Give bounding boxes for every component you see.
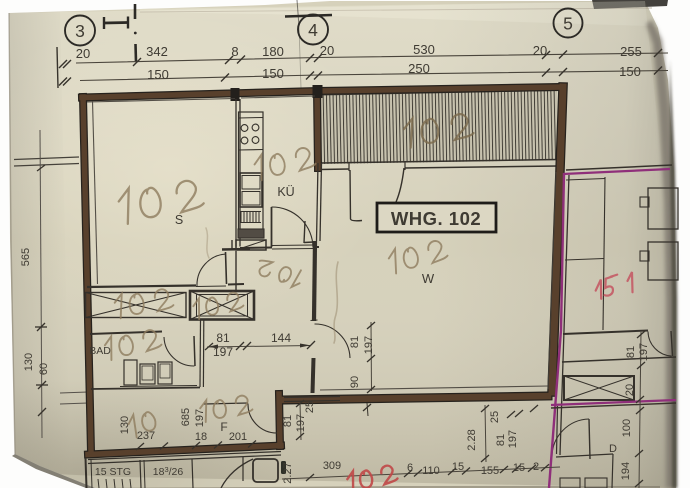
- svg-text:110: 110: [422, 465, 440, 477]
- svg-text:183/26: 183/26: [153, 465, 184, 478]
- svg-text:81: 81: [495, 434, 507, 446]
- svg-text:81: 81: [349, 336, 361, 348]
- svg-text:81: 81: [625, 346, 637, 358]
- svg-text:D: D: [609, 443, 617, 455]
- svg-text:8: 8: [231, 44, 238, 59]
- svg-text:15: 15: [452, 461, 464, 473]
- svg-text:5: 5: [563, 14, 573, 34]
- svg-text:255: 255: [620, 44, 642, 59]
- svg-text:15: 15: [513, 462, 525, 474]
- svg-text:81: 81: [216, 331, 230, 345]
- svg-text:60: 60: [38, 363, 50, 375]
- svg-text:2.27: 2.27: [282, 462, 294, 483]
- svg-text:685: 685: [180, 408, 192, 426]
- svg-text:180: 180: [262, 44, 284, 59]
- svg-text:S: S: [175, 213, 183, 227]
- svg-text:20: 20: [76, 46, 90, 61]
- svg-text:144: 144: [271, 331, 291, 345]
- svg-text:130: 130: [119, 416, 131, 434]
- svg-text:150: 150: [147, 67, 169, 82]
- svg-text:155: 155: [481, 465, 499, 477]
- svg-text:2.28: 2.28: [466, 429, 478, 450]
- svg-text:81: 81: [282, 415, 294, 427]
- svg-text:KÜ: KÜ: [277, 185, 294, 199]
- svg-text:197: 197: [507, 430, 519, 448]
- svg-text:18: 18: [195, 431, 207, 443]
- svg-text:150: 150: [262, 66, 284, 81]
- svg-text:530: 530: [413, 42, 435, 57]
- svg-text:4: 4: [308, 20, 318, 40]
- svg-text:342: 342: [146, 44, 168, 59]
- svg-text:565: 565: [20, 248, 32, 266]
- svg-text:250: 250: [408, 61, 430, 76]
- svg-text:W: W: [422, 271, 435, 286]
- svg-text:6: 6: [407, 462, 413, 474]
- svg-text:20: 20: [624, 384, 636, 396]
- svg-text:309: 309: [323, 460, 341, 472]
- svg-text:130: 130: [23, 353, 35, 371]
- svg-text:150: 150: [619, 64, 641, 79]
- svg-text:20: 20: [320, 43, 334, 58]
- svg-text:197: 197: [363, 336, 375, 354]
- svg-text:WHG. 102: WHG. 102: [391, 208, 481, 229]
- svg-text:197: 197: [295, 414, 307, 432]
- svg-text:15 STG: 15 STG: [95, 466, 131, 478]
- svg-text:2: 2: [533, 461, 539, 473]
- svg-text:100: 100: [621, 419, 633, 437]
- svg-text:3: 3: [75, 21, 85, 41]
- svg-text:25: 25: [304, 401, 316, 413]
- svg-text:237: 237: [137, 430, 155, 442]
- svg-text:201: 201: [229, 431, 247, 443]
- svg-text:90: 90: [349, 376, 361, 388]
- svg-text:20: 20: [533, 43, 547, 58]
- svg-text:BAD: BAD: [89, 345, 111, 357]
- svg-text:197: 197: [194, 409, 206, 427]
- svg-text:F: F: [220, 420, 227, 434]
- svg-text:194: 194: [620, 462, 632, 480]
- svg-text:197: 197: [213, 345, 233, 359]
- svg-text:25: 25: [489, 411, 501, 423]
- svg-text:197: 197: [638, 343, 650, 361]
